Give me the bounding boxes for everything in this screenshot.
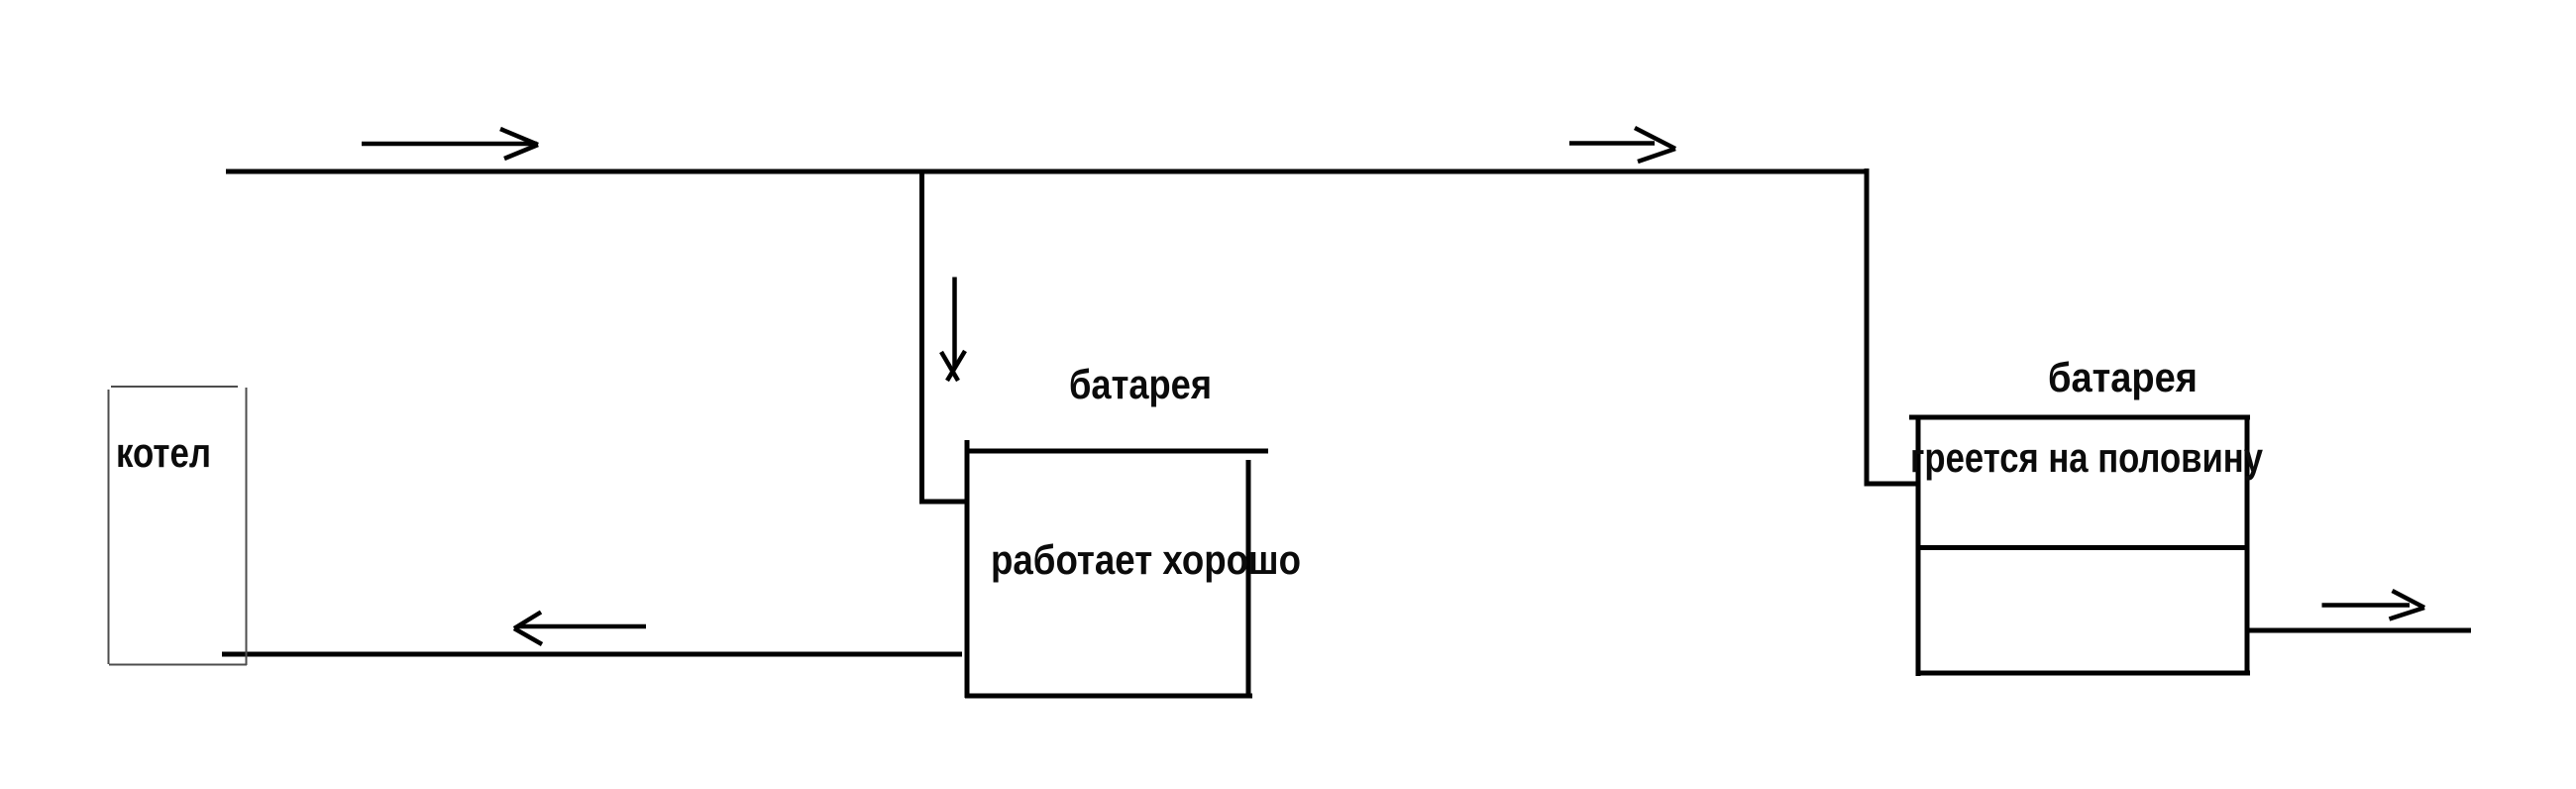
svg-text:котел: котел <box>116 429 211 476</box>
svg-text:работает хорошо: работает хорошо <box>991 536 1301 583</box>
svg-text:батарея: батарея <box>2048 354 2198 400</box>
svg-text:батарея: батарея <box>1069 361 1212 407</box>
svg-text:греется на половину: греется на половину <box>1910 434 2264 481</box>
